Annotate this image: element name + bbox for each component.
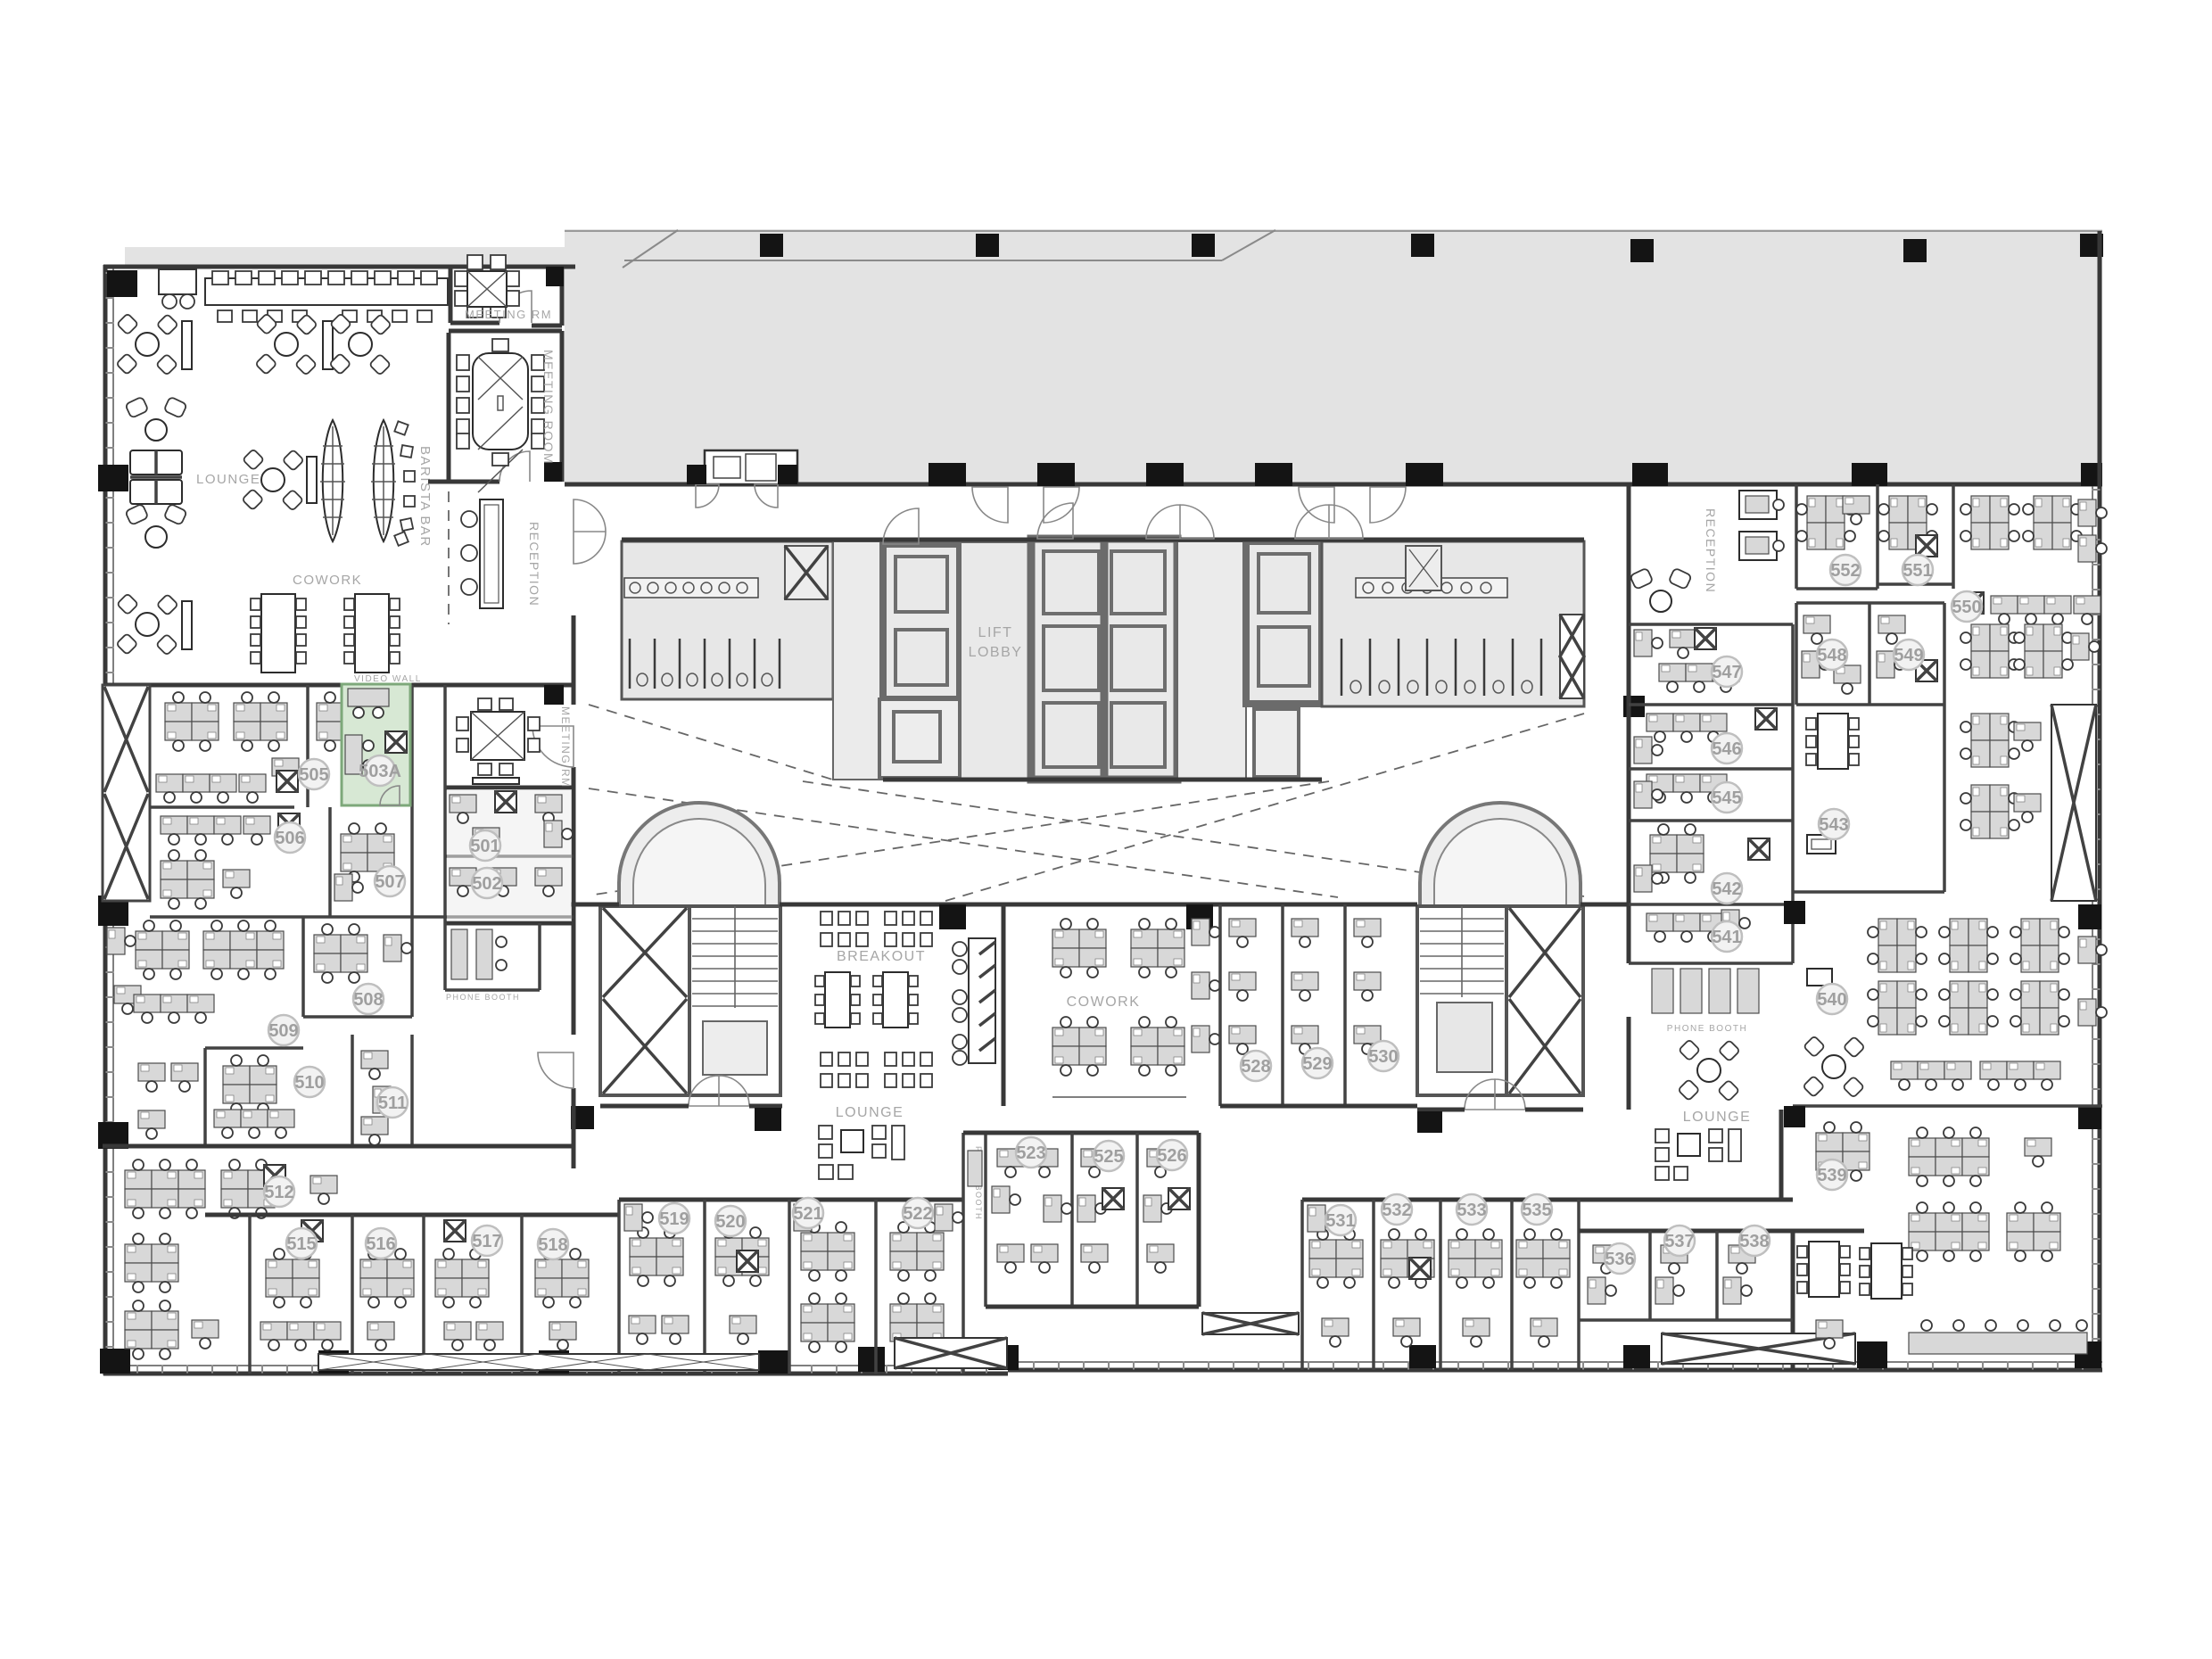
svg-text:528: 528 <box>1241 1057 1270 1077</box>
svg-text:507: 507 <box>375 872 404 892</box>
svg-text:LOUNGE: LOUNGE <box>196 472 260 487</box>
svg-text:530: 530 <box>1368 1047 1398 1067</box>
svg-text:511: 511 <box>378 1094 407 1113</box>
svg-text:540: 540 <box>1817 990 1846 1010</box>
svg-text:LOUNGE: LOUNGE <box>1683 1110 1752 1125</box>
svg-text:539: 539 <box>1817 1166 1846 1185</box>
svg-text:BARISTA BAR: BARISTA BAR <box>417 446 433 548</box>
svg-text:MEETING RM: MEETING RM <box>465 308 552 321</box>
svg-text:546: 546 <box>1712 739 1741 759</box>
svg-text:503A: 503A <box>359 762 401 781</box>
svg-text:547: 547 <box>1712 663 1741 682</box>
svg-text:532: 532 <box>1382 1201 1411 1220</box>
svg-text:552: 552 <box>1830 561 1860 581</box>
svg-text:509: 509 <box>268 1021 298 1041</box>
svg-text:533: 533 <box>1457 1201 1486 1220</box>
svg-text:LOBBY: LOBBY <box>969 645 1023 660</box>
svg-text:VIDEO WALL: VIDEO WALL <box>354 674 422 684</box>
svg-text:529: 529 <box>1302 1054 1332 1074</box>
svg-text:502: 502 <box>472 874 501 894</box>
svg-text:RECEPTION: RECEPTION <box>1704 508 1718 593</box>
svg-text:LOUNGE: LOUNGE <box>836 1105 904 1120</box>
svg-text:531: 531 <box>1325 1211 1355 1231</box>
svg-text:541: 541 <box>1712 928 1741 947</box>
svg-text:501: 501 <box>470 837 499 856</box>
svg-text:525: 525 <box>1094 1147 1123 1167</box>
svg-text:526: 526 <box>1157 1146 1186 1166</box>
svg-text:535: 535 <box>1522 1201 1551 1220</box>
svg-text:551: 551 <box>1902 561 1932 581</box>
svg-text:516: 516 <box>366 1234 395 1254</box>
svg-text:LIFT: LIFT <box>978 625 1013 640</box>
svg-text:MEETING RM: MEETING RM <box>559 706 572 788</box>
svg-text:545: 545 <box>1712 788 1741 808</box>
svg-text:542: 542 <box>1712 879 1741 899</box>
svg-text:521: 521 <box>793 1204 822 1224</box>
svg-text:520: 520 <box>715 1212 745 1232</box>
svg-text:515: 515 <box>286 1234 316 1254</box>
svg-text:508: 508 <box>353 990 383 1010</box>
svg-text:BREAKOUT: BREAKOUT <box>837 949 926 964</box>
svg-text:RECEPTION: RECEPTION <box>527 522 541 607</box>
svg-text:512: 512 <box>264 1183 293 1202</box>
svg-text:PHONE BOOTH: PHONE BOOTH <box>446 993 520 1002</box>
svg-text:550: 550 <box>1952 598 1981 617</box>
svg-text:522: 522 <box>903 1204 932 1224</box>
svg-text:538: 538 <box>1739 1232 1769 1251</box>
svg-text:537: 537 <box>1664 1232 1694 1251</box>
svg-text:COWORK: COWORK <box>293 573 362 588</box>
svg-text:536: 536 <box>1605 1250 1634 1269</box>
svg-text:543: 543 <box>1819 815 1848 835</box>
svg-text:523: 523 <box>1016 1143 1045 1163</box>
svg-text:548: 548 <box>1817 646 1846 665</box>
svg-text:506: 506 <box>275 829 304 848</box>
svg-text:COWORK: COWORK <box>1067 995 1141 1010</box>
svg-text:518: 518 <box>538 1235 567 1255</box>
svg-text:549: 549 <box>1894 646 1923 665</box>
svg-text:510: 510 <box>294 1073 324 1093</box>
svg-text:517: 517 <box>472 1232 501 1251</box>
svg-text:505: 505 <box>299 765 328 785</box>
svg-text:PHONE BOOTH: PHONE BOOTH <box>1667 1024 1747 1034</box>
svg-text:MEETING ROOM: MEETING ROOM <box>541 350 556 465</box>
svg-text:519: 519 <box>659 1209 689 1229</box>
